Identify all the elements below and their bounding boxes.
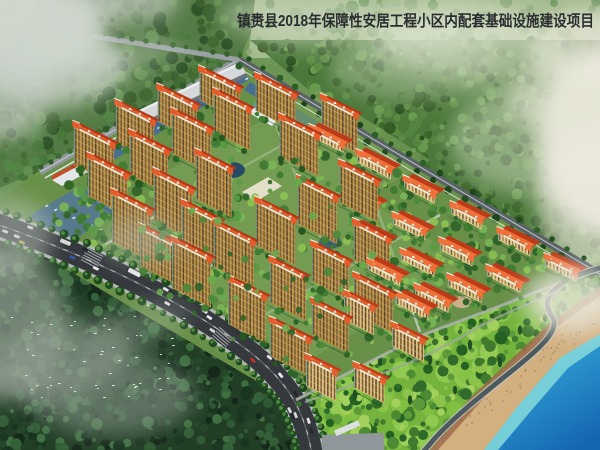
svg-text:镇赉县2018年保障性安居工程小区内配套基础设施建设项目: 镇赉县2018年保障性安居工程小区内配套基础设施建设项目 — [237, 11, 594, 30]
